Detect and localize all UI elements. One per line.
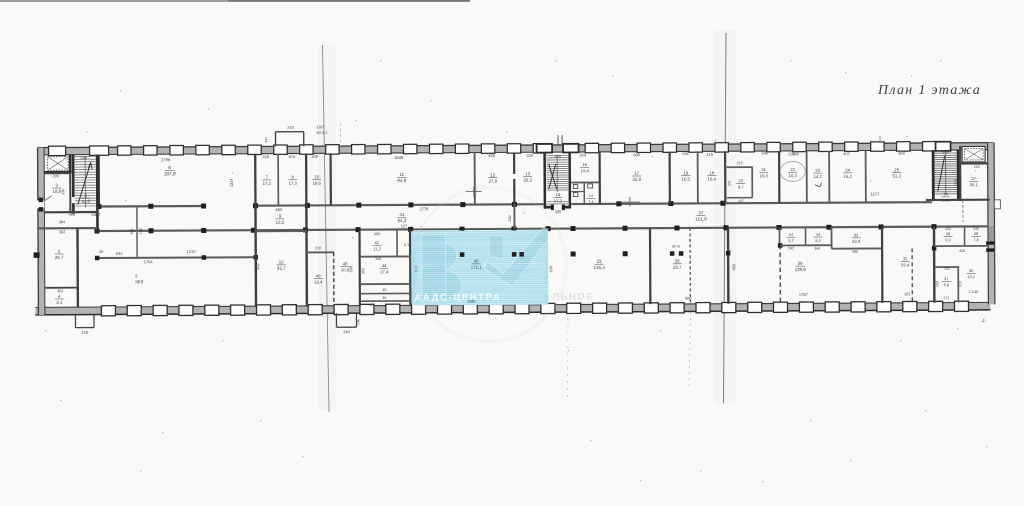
svg-text:18/7: 18/7 [316,124,324,129]
svg-text:936: 936 [683,152,689,156]
svg-text:31: 31 [944,276,948,281]
svg-text:48: 48 [343,261,348,266]
svg-text:660: 660 [685,296,691,300]
svg-text:400: 400 [374,232,380,236]
svg-text:2776: 2776 [419,206,429,211]
svg-text:64,2: 64,2 [397,218,406,223]
svg-text:11,8: 11,8 [82,199,91,204]
svg-text:420: 420 [959,249,965,253]
svg-text:127: 127 [401,224,407,228]
svg-text:ААДС-ЦЕНТРА: ААДС-ЦЕНТРА [414,291,501,302]
svg-text:14: 14 [555,192,560,197]
svg-text:36: 36 [798,261,803,266]
svg-text:383: 383 [59,229,66,234]
svg-text:18,4: 18,4 [314,280,323,285]
svg-text:248: 248 [262,154,269,159]
svg-text:204: 204 [288,154,295,159]
svg-text:242: 242 [788,246,794,250]
svg-text:340: 340 [375,257,381,261]
svg-text:21: 21 [761,167,766,172]
svg-text:16,5: 16,5 [682,177,691,182]
svg-text:27: 27 [971,176,976,181]
svg-text:15: 15 [582,162,587,167]
svg-text:19: 19 [683,170,688,175]
svg-text:25: 25 [894,167,899,172]
svg-text:235: 235 [974,165,980,169]
svg-text:190: 190 [139,228,143,234]
svg-text:28: 28 [946,231,950,236]
svg-text:282: 282 [508,215,512,221]
svg-text:2-3,46: 2-3,46 [969,290,979,294]
svg-text:44: 44 [382,263,387,268]
svg-text:5,9: 5,9 [944,282,949,287]
svg-text:331: 331 [130,228,134,234]
svg-text:94,9: 94,9 [397,178,406,183]
svg-text:247: 247 [738,199,744,203]
svg-text:139,9: 139,9 [795,267,807,272]
svg-text:273: 273 [943,296,949,300]
svg-text:6,1: 6,1 [404,243,409,247]
svg-text:163: 163 [935,281,939,287]
svg-text:41: 41 [399,212,405,217]
svg-text:245: 245 [973,227,979,231]
svg-text:344: 344 [814,247,820,251]
svg-text:13: 13 [525,171,530,176]
svg-text:8,2: 8,2 [815,238,820,243]
svg-text:330: 330 [555,209,562,214]
svg-text:16,3: 16,3 [760,173,769,178]
svg-text:∠·: ∠· [981,318,988,324]
svg-text:210: 210 [315,246,321,250]
svg-text:7,4: 7,4 [588,200,593,204]
svg-text:910: 910 [414,266,418,272]
svg-text:1704: 1704 [144,259,154,264]
svg-text:План 1 этажа: План 1 этажа [877,83,981,98]
svg-text:17,2: 17,2 [554,198,563,203]
svg-text:11,2: 11,2 [373,246,381,251]
svg-text:290: 290 [944,267,950,271]
svg-text:32: 32 [903,256,908,261]
svg-text:20: 20 [739,178,744,183]
svg-text:30,1: 30,1 [970,182,979,187]
svg-text:902: 902 [256,264,260,270]
svg-text:187,8: 187,8 [164,171,176,177]
svg-text:47: 47 [369,303,373,307]
svg-text:1849: 1849 [394,155,404,160]
svg-text:37: 37 [698,210,704,215]
svg-text:24,0: 24,0 [942,199,949,203]
svg-text:13,2: 13,2 [276,220,285,225]
svg-text:23: 23 [815,168,820,173]
svg-text:18: 18 [709,170,714,175]
svg-text:1180: 1180 [467,299,476,304]
svg-text:934: 934 [942,151,948,155]
svg-text:2796: 2796 [161,157,171,162]
svg-text:638: 638 [349,266,353,272]
svg-text:24: 24 [845,168,850,173]
svg-text:22: 22 [790,167,795,172]
svg-text:27,9: 27,9 [488,179,497,184]
svg-text:248: 248 [793,152,799,156]
svg-text:240: 240 [343,329,350,334]
svg-text:10: 10 [314,174,319,179]
svg-text:17: 17 [634,171,639,176]
svg-text:17,4: 17,4 [380,269,389,274]
svg-text:1310: 1310 [187,249,197,254]
svg-text:49: 49 [316,273,321,278]
svg-text:45: 45 [382,288,386,292]
svg-text:498: 498 [69,212,76,217]
svg-text:26,7: 26,7 [55,255,64,260]
svg-text:55,4: 55,4 [901,262,910,267]
svg-text:7,8: 7,8 [973,237,978,242]
svg-text:8,1: 8,1 [56,300,63,305]
svg-text:447: 447 [265,137,269,143]
svg-text:30 41: 30 41 [672,244,681,248]
svg-text:632: 632 [116,251,123,256]
svg-text:466: 466 [488,153,495,158]
svg-text:32,8: 32,8 [632,177,641,182]
svg-text:18,8: 18,8 [53,189,62,194]
svg-text:219: 219 [737,161,743,165]
svg-text:218: 218 [81,330,88,335]
svg-text:850: 850 [732,264,736,270]
svg-text:241: 241 [727,180,731,186]
svg-text:20,2: 20,2 [523,177,532,182]
svg-text:51,3: 51,3 [893,174,902,179]
svg-text:101: 101 [904,292,910,296]
svg-text:40-2,1: 40-2,1 [316,130,327,135]
svg-text:46: 46 [382,296,386,300]
svg-text:248: 248 [80,155,88,160]
svg-text:290: 290 [53,174,59,178]
svg-text:630: 630 [549,266,553,272]
svg-text:686: 686 [633,152,640,157]
svg-text:ІІК3: ІІК3 [135,279,143,284]
svg-text:900: 900 [898,151,905,156]
svg-text:10: 10 [279,260,284,265]
svg-text:310: 310 [958,281,962,287]
svg-text:250: 250 [945,227,951,231]
svg-text:62: 62 [375,240,380,245]
svg-text:407: 407 [843,151,850,156]
svg-text:16,4: 16,4 [708,176,717,181]
svg-text:9,3: 9,3 [945,237,950,242]
svg-text:240: 240 [554,154,561,159]
svg-text:218: 218 [287,125,294,130]
svg-text:586: 586 [852,250,858,254]
svg-text:14: 14 [589,194,593,198]
svg-text:10,2: 10,2 [967,274,975,279]
svg-text:5,7: 5,7 [788,238,793,243]
svg-text:346: 346 [762,152,768,156]
svg-text:1177: 1177 [870,191,880,196]
svg-text:1314: 1314 [229,178,234,188]
svg-text:1787: 1787 [799,292,809,297]
svg-text:22: 22 [597,259,603,264]
svg-text:26: 26 [675,258,680,263]
svg-text:16,3: 16,3 [789,173,798,178]
svg-text:135,4: 135,4 [593,265,605,270]
svg-text:40: 40 [474,259,479,264]
svg-text:29: 29 [974,231,978,236]
svg-text:32,7: 32,7 [277,266,286,271]
svg-text:30: 30 [99,250,103,254]
svg-text:19,7: 19,7 [673,265,682,270]
svg-text:330: 330 [526,153,533,158]
svg-text:302: 302 [57,289,63,293]
svg-text:16,2: 16,2 [844,174,853,179]
svg-text:330: 330 [61,189,65,195]
svg-text:151,9: 151,9 [695,217,707,222]
svg-text:14,2: 14,2 [814,174,823,179]
svg-text:269: 269 [311,154,318,159]
svg-text:304: 304 [579,152,586,157]
svg-text:12: 12 [490,172,495,177]
svg-text:17,3: 17,3 [289,181,298,186]
svg-text:11: 11 [399,172,404,177]
svg-text:18,6: 18,6 [313,181,322,186]
svg-text:24: 24 [944,193,948,197]
svg-text:33: 33 [854,233,859,238]
svg-text:303: 303 [954,179,958,185]
svg-text:219: 219 [706,152,713,157]
svg-text:350: 350 [361,268,365,274]
svg-text:10,4: 10,4 [581,168,590,173]
svg-text:33,4: 33,4 [852,239,861,244]
svg-text:8,7: 8,7 [738,184,744,189]
svg-text:17,2: 17,2 [263,181,272,186]
svg-text:460: 460 [275,207,283,212]
svg-text:146: 146 [356,319,360,325]
svg-text:171,1: 171,1 [471,265,483,270]
svg-text:394: 394 [59,219,66,224]
